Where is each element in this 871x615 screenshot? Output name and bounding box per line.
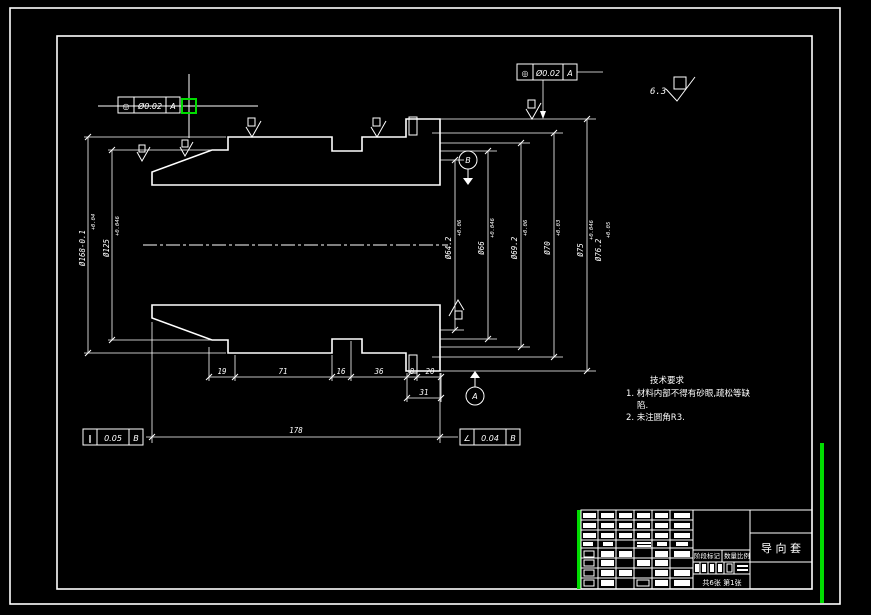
fcf-top-right-symbol: ◎ [522, 69, 529, 78]
dim-left-1-tol: +0.04 [91, 214, 97, 231]
dim-right-6-tol: +0.05 [606, 222, 612, 239]
dim-right-3-tol: +0.06 [523, 219, 529, 236]
cad-crosshair-cursor [98, 74, 258, 138]
titleblock-part-name: 导 向 套 [761, 541, 801, 555]
roughness-check-icon [666, 77, 695, 101]
fcf-bottom-right-value: 0.04 [481, 434, 499, 443]
fcf-bottom-left-datum: B [133, 434, 139, 443]
rest-roughness-value: 6.3 [650, 87, 666, 97]
tech-req-title: 技术要求 [650, 375, 685, 386]
dim-right-1-tol: +0.06 [457, 219, 463, 236]
dim-right-5-tol: +0.046 [589, 219, 595, 240]
dim-right-2: Ø66 [477, 241, 486, 255]
titleblock-sheet-label: 共6张 第1张 [702, 578, 741, 587]
dim-right-3: Ø69.2 [510, 236, 519, 259]
datum-bottom-label: A [471, 392, 477, 401]
dim-chain-19: 19 [217, 367, 227, 376]
dim-left-2-tol: +0.046 [115, 215, 121, 236]
part-lower-section [152, 305, 440, 371]
datum-circle-bottom: A [466, 371, 484, 405]
dim-right-5: Ø75 [576, 243, 585, 257]
dim-chain-8: 8 [410, 367, 415, 376]
dim-right-4-tol: +0.03 [556, 220, 562, 237]
rest-roughness-note: 6.3 [650, 77, 695, 101]
part-view [143, 117, 448, 373]
right-dimension-lines: Ø64.2 +0.06 Ø66 +0.046 Ø69.2 +0.06 Ø70 +… [444, 116, 612, 374]
fcf-bottom-left-value: 0.05 [104, 434, 122, 443]
tech-req-line2: 陷. [637, 400, 648, 411]
part-upper-section [152, 119, 440, 185]
dim-right-2-tol: +0.046 [490, 217, 496, 238]
tech-req-line3: 2. 未注圆角R3. [626, 412, 685, 423]
dim-left-1: Ø168-0.1 [78, 230, 87, 266]
roughness-icon-5 [180, 140, 193, 156]
fcf-top-right-datum: A [566, 69, 572, 78]
dim-chain-36: 36 [373, 367, 384, 376]
roughness-icon-1 [246, 118, 261, 137]
datum-top-label: B [465, 156, 471, 165]
dim-chain-20: 20 [425, 367, 435, 376]
dim-chain-16: 16 [336, 367, 346, 376]
title-block: 阶段标记 数量比例 共6张 第1张 导 向 套 [581, 510, 812, 589]
cad-drawing: Ø64.2 +0.06 Ø66 +0.046 Ø69.2 +0.06 Ø70 +… [0, 0, 871, 615]
dim-left-2: Ø125 [102, 238, 111, 257]
fcf-bottom-left: ∥ 0.05 B [83, 429, 143, 445]
dim-chain-71: 71 [278, 367, 287, 376]
fcf-bottom-left-symbol: ∥ [88, 434, 92, 443]
roughness-icon-2 [371, 118, 386, 137]
dim-right-1: Ø64.2 [444, 236, 453, 259]
fcf-top-right-value: Ø0.02 [535, 68, 560, 78]
datum-circle-top: B [459, 151, 477, 185]
fcf-bottom-right-datum: B [510, 434, 516, 443]
fcf-bottom-right: ∠ 0.04 B [460, 429, 520, 445]
roughness-icon-3 [526, 100, 541, 119]
roughness-icon-6 [449, 300, 464, 319]
tech-req-line1: 1. 材料内部不得有砂眼,疏松等缺 [626, 388, 751, 399]
dim-right-6: Ø76.2 [594, 238, 603, 261]
titleblock-qty-scale-label: 数量比例 [724, 551, 750, 560]
roughness-icon-4 [137, 145, 150, 161]
leader-arrow [540, 111, 546, 119]
cad-canvas[interactable]: Ø64.2 +0.06 Ø66 +0.046 Ø69.2 +0.06 Ø70 +… [0, 0, 871, 615]
fcf-top-left: ◎ Ø0.02 A [118, 97, 180, 113]
dim-overall-178: 178 [289, 426, 303, 435]
fcf-top-right: ◎ Ø0.02 A [517, 64, 603, 119]
dim-step-31: 31 [418, 388, 428, 397]
dim-right-4: Ø70 [543, 241, 552, 255]
fcf-bottom-right-symbol: ∠ [463, 434, 470, 443]
titleblock-stage-label: 阶段标记 [694, 551, 721, 560]
technical-requirements: 技术要求 1. 材料内部不得有砂眼,疏松等缺 陷. 2. 未注圆角R3. [626, 375, 751, 423]
